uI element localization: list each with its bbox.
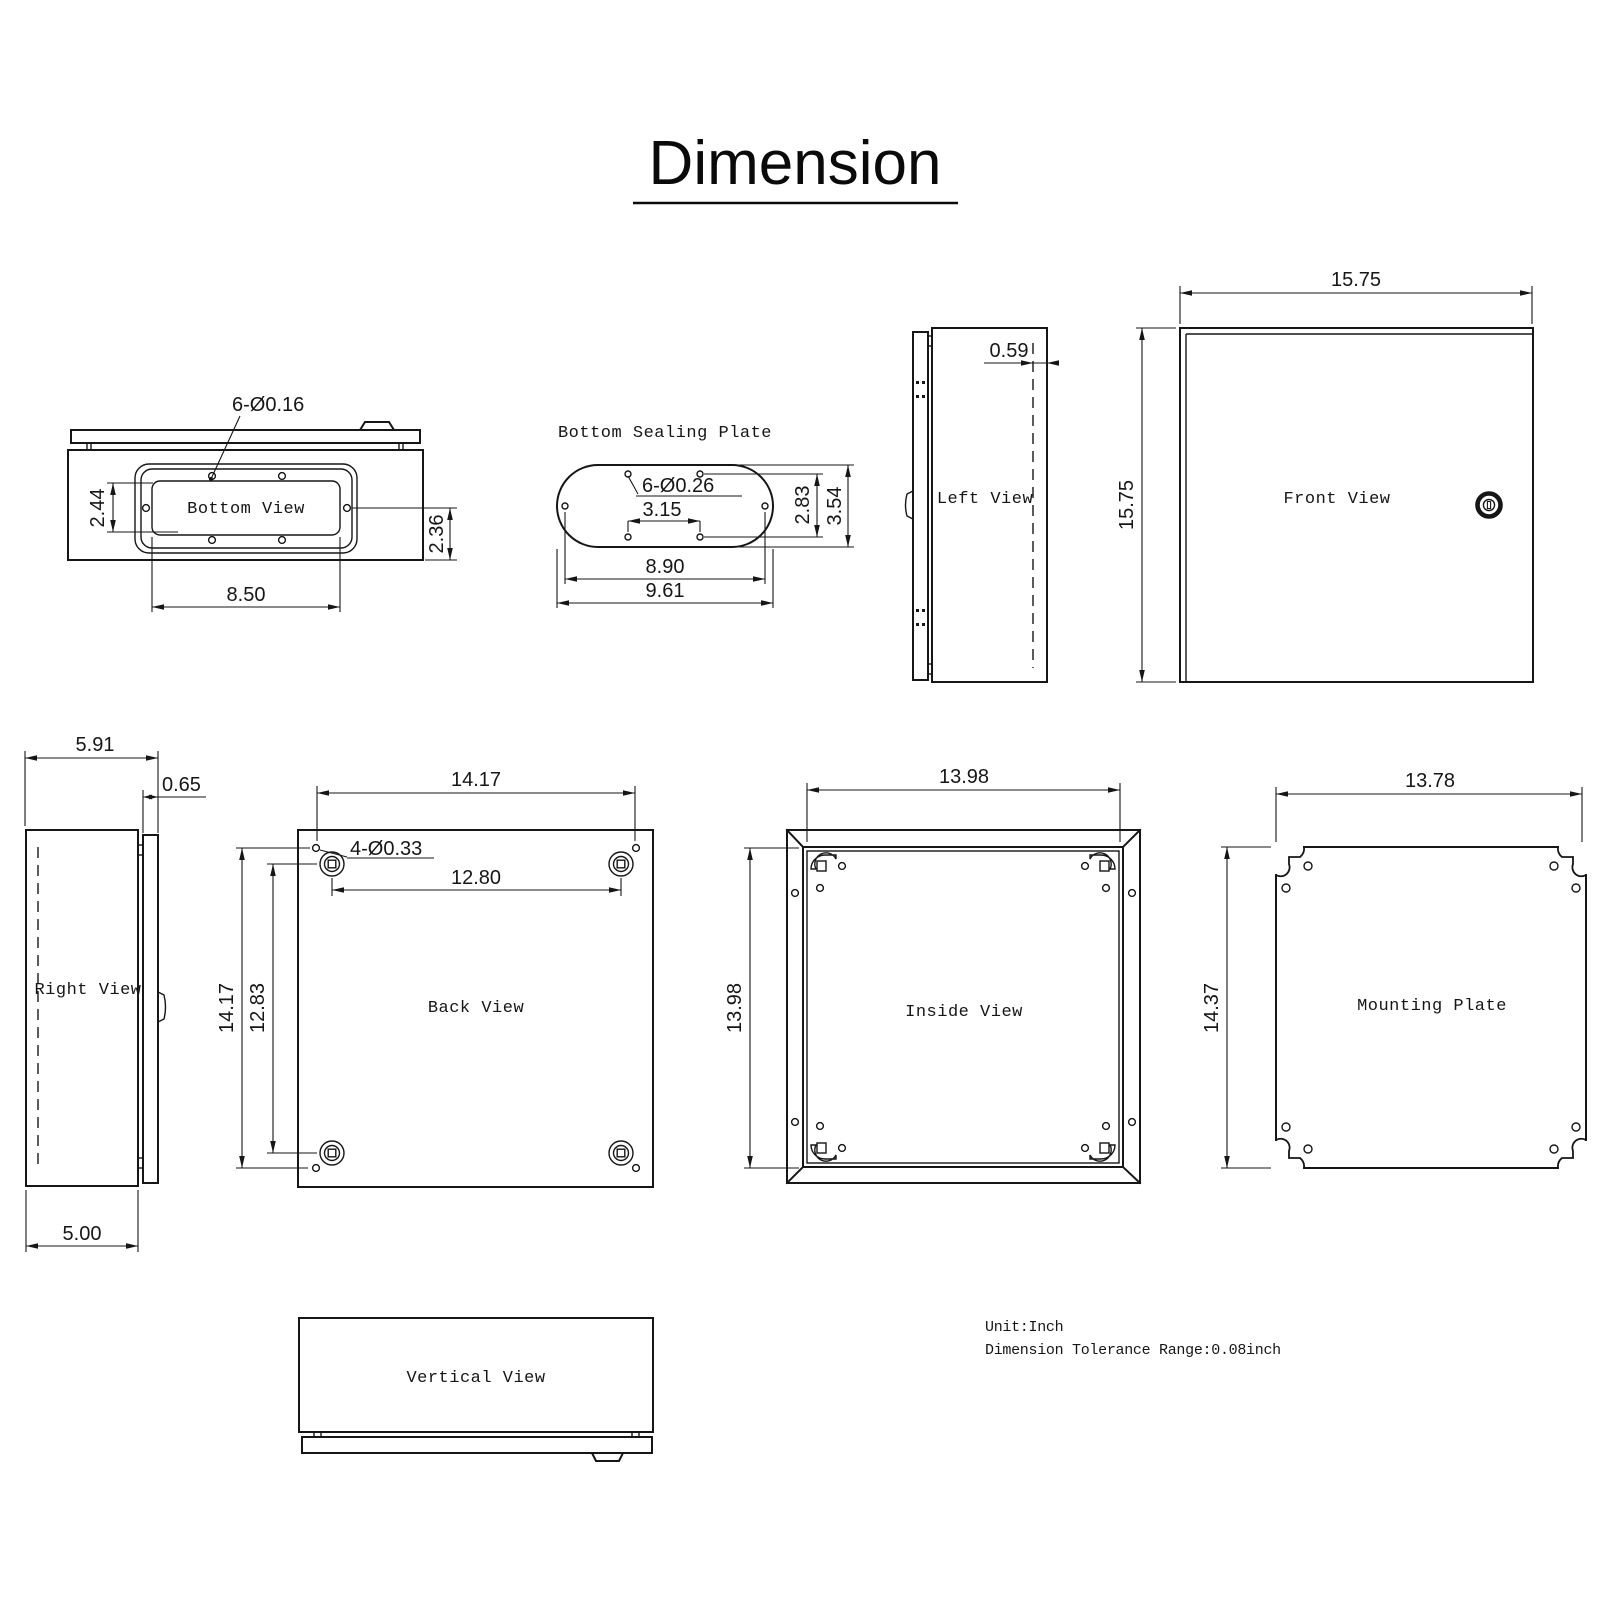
- front-dim-width: 15.75: [1331, 269, 1381, 291]
- sealing-plate-dim-width: 9.61: [646, 580, 685, 602]
- note-tolerance: Dimension Tolerance Range:0.08inch: [985, 1342, 1281, 1359]
- mounting-plate-label: Mounting Plate: [1357, 997, 1507, 1016]
- corner-clip-top-right: [1090, 853, 1115, 871]
- bottom-view: Bottom View 6-Ø0.16 2.44 2.36 8.50: [68, 394, 457, 612]
- right-view-door-edge: [143, 835, 158, 1183]
- plate-notch-bottom-left: [1276, 1139, 1304, 1168]
- front-view: Front View 15.75 15.75: [1116, 269, 1533, 682]
- vertical-view-door-edge: [302, 1437, 652, 1453]
- back-hole-callout: 4-Ø0.33: [350, 838, 422, 860]
- corner-clip-bottom-left: [811, 1143, 836, 1161]
- back-dim-hole-span-y: 14.17: [216, 983, 238, 1033]
- corner-clip-top-left: [811, 853, 836, 871]
- sealing-plate-dim-hole-span-y: 2.83: [792, 486, 814, 525]
- vertical-view-latch-bump: [592, 1453, 623, 1461]
- plate-notch-bottom-right: [1558, 1139, 1586, 1168]
- back-view-label: Back View: [428, 999, 525, 1018]
- back-view: 4-Ø0.33 14.17 12.80 14.17 12.83 Back Vie…: [216, 769, 653, 1187]
- mounting-dim-width: 13.78: [1405, 770, 1455, 792]
- inside-dim-height: 13.98: [724, 983, 746, 1033]
- inside-view-label: Inside View: [905, 1003, 1023, 1022]
- right-view-label: Right View: [34, 981, 141, 1000]
- right-dim-total-depth: 5.91: [76, 734, 115, 756]
- left-view-label: Left View: [937, 490, 1034, 509]
- back-dim-boss-span-x: 12.80: [451, 867, 501, 889]
- lock-icon: [1478, 494, 1501, 517]
- bottom-view-latch-bump: [360, 422, 394, 430]
- drawing-canvas: Dimension Bottom View 6-Ø0.16 2.44 2.36: [0, 0, 1600, 1600]
- left-view-door-edge: [913, 332, 928, 680]
- corner-clip-bottom-right: [1090, 1143, 1115, 1161]
- mounting-plate-view: 13.78 14.37 Mounting Plate: [1201, 770, 1586, 1168]
- sealing-plate-hole-callout: 6-Ø0.26: [642, 475, 714, 497]
- right-view: Right View 5.91 0.65 5.00: [25, 734, 206, 1252]
- inside-dim-width: 13.98: [939, 766, 989, 788]
- note-unit: Unit:Inch: [985, 1319, 1063, 1336]
- page-title: Dimension: [649, 129, 942, 198]
- notes: Unit:Inch Dimension Tolerance Range:0.08…: [985, 1319, 1281, 1359]
- right-view-body: [26, 830, 138, 1186]
- plate-notch-top-right: [1558, 847, 1586, 876]
- mounting-boss-bottom-left: [320, 1141, 344, 1165]
- bottom-dim-cutout-width: 8.50: [227, 584, 266, 606]
- plate-notch-top-left: [1276, 847, 1304, 876]
- right-view-latch: [158, 992, 166, 1022]
- bottom-hole-callout: 6-Ø0.16: [232, 394, 304, 416]
- front-view-label: Front View: [1283, 490, 1390, 509]
- left-view: Left View 0.59: [906, 328, 1060, 682]
- page-title-group: Dimension: [633, 129, 958, 203]
- left-dim-door-offset: 0.59: [990, 340, 1029, 362]
- right-dim-door-depth: 0.65: [162, 774, 201, 796]
- dimension-drawing-page: Dimension Bottom View 6-Ø0.16 2.44 2.36: [0, 0, 1600, 1600]
- sealing-plate-dim-hole-width: 8.90: [646, 556, 685, 578]
- mounting-dim-height: 14.37: [1201, 983, 1223, 1033]
- bottom-sealing-plate-view: Bottom Sealing Plate 6-Ø0.26 3.15 2.83 3…: [557, 424, 854, 608]
- vertical-view-label: Vertical View: [406, 1369, 545, 1388]
- right-dim-body-depth: 5.00: [63, 1223, 102, 1245]
- vertical-view: Vertical View: [299, 1318, 653, 1461]
- sealing-plate-dim-height: 3.54: [824, 487, 846, 526]
- front-dim-height: 15.75: [1116, 480, 1138, 530]
- bottom-dim-cutout-height: 2.44: [87, 489, 109, 528]
- back-dim-boss-span-y: 12.83: [247, 983, 269, 1033]
- inside-view: 13.98 13.98 Inside View: [724, 766, 1140, 1183]
- bottom-dim-edge-offset: 2.36: [426, 515, 448, 554]
- mounting-boss-bottom-right: [609, 1141, 633, 1165]
- back-dim-hole-span-x: 14.17: [451, 769, 501, 791]
- bottom-view-label: Bottom View: [187, 500, 305, 519]
- sealing-plate-label: Bottom Sealing Plate: [558, 424, 772, 443]
- left-view-latch: [906, 491, 914, 519]
- mounting-boss-top-right: [609, 852, 633, 876]
- sealing-plate-dim-hole-span-x: 3.15: [643, 499, 682, 521]
- bottom-view-flange: [71, 430, 420, 443]
